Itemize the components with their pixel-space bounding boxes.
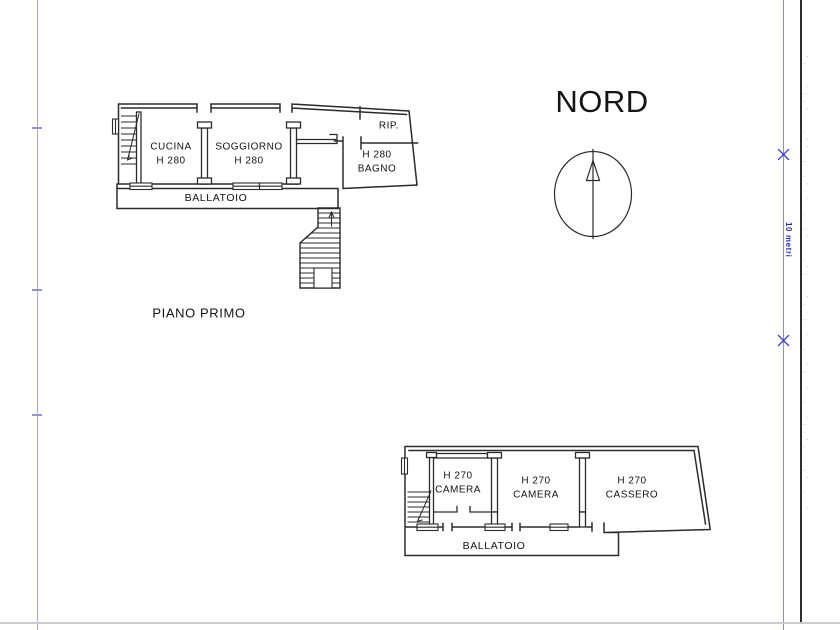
room-label-cassero: H 270 CASSERO	[606, 475, 658, 502]
room-label-bagno: H 280 BAGNO	[358, 149, 397, 176]
room-label-soggiorno: SOGGIORNO H 280	[215, 141, 282, 168]
room-name: CAMERA	[513, 488, 559, 502]
room-height: H 270	[513, 475, 559, 489]
floorplan-drawing	[0, 0, 840, 630]
plan1-title: PIANO PRIMO	[152, 306, 245, 321]
room-height: H 280	[215, 154, 282, 168]
room-name: BAGNO	[358, 162, 397, 176]
walkway-label-plan2: BALLATOIO	[463, 540, 526, 552]
room-name: SOGGIORNO	[215, 141, 282, 155]
room-name: CUCINA	[150, 141, 191, 155]
plan2-internal-stair	[408, 491, 431, 522]
room-height: H 270	[606, 475, 658, 489]
scale-bar-label: 10 metri	[784, 222, 793, 257]
plan1-external-stair	[300, 208, 340, 288]
walkway-label-plan1: BALLATOIO	[185, 192, 248, 204]
room-name: CASSERO	[606, 488, 658, 502]
floorplan-sheet: NORD PIANO PRIMO CUCINA H 280 SOGGIORNO …	[0, 0, 840, 630]
room-label-camera2: H 270 CAMERA	[513, 475, 559, 502]
room-label-rip: RIP.	[379, 119, 399, 133]
north-label: NORD	[555, 84, 648, 120]
room-height: H 280	[150, 154, 191, 168]
north-compass-icon	[555, 150, 632, 239]
room-label-cucina: CUCINA H 280	[150, 141, 191, 168]
room-name: CAMERA	[435, 483, 481, 497]
room-height: H 280	[358, 149, 397, 163]
room-height: H 270	[435, 470, 481, 484]
edge-stamp-text: ' , . ` ' ; , ' . ` , ' ' . ; ` , ' . ' …	[802, 56, 808, 616]
room-label-camera1: H 270 CAMERA	[435, 470, 481, 497]
